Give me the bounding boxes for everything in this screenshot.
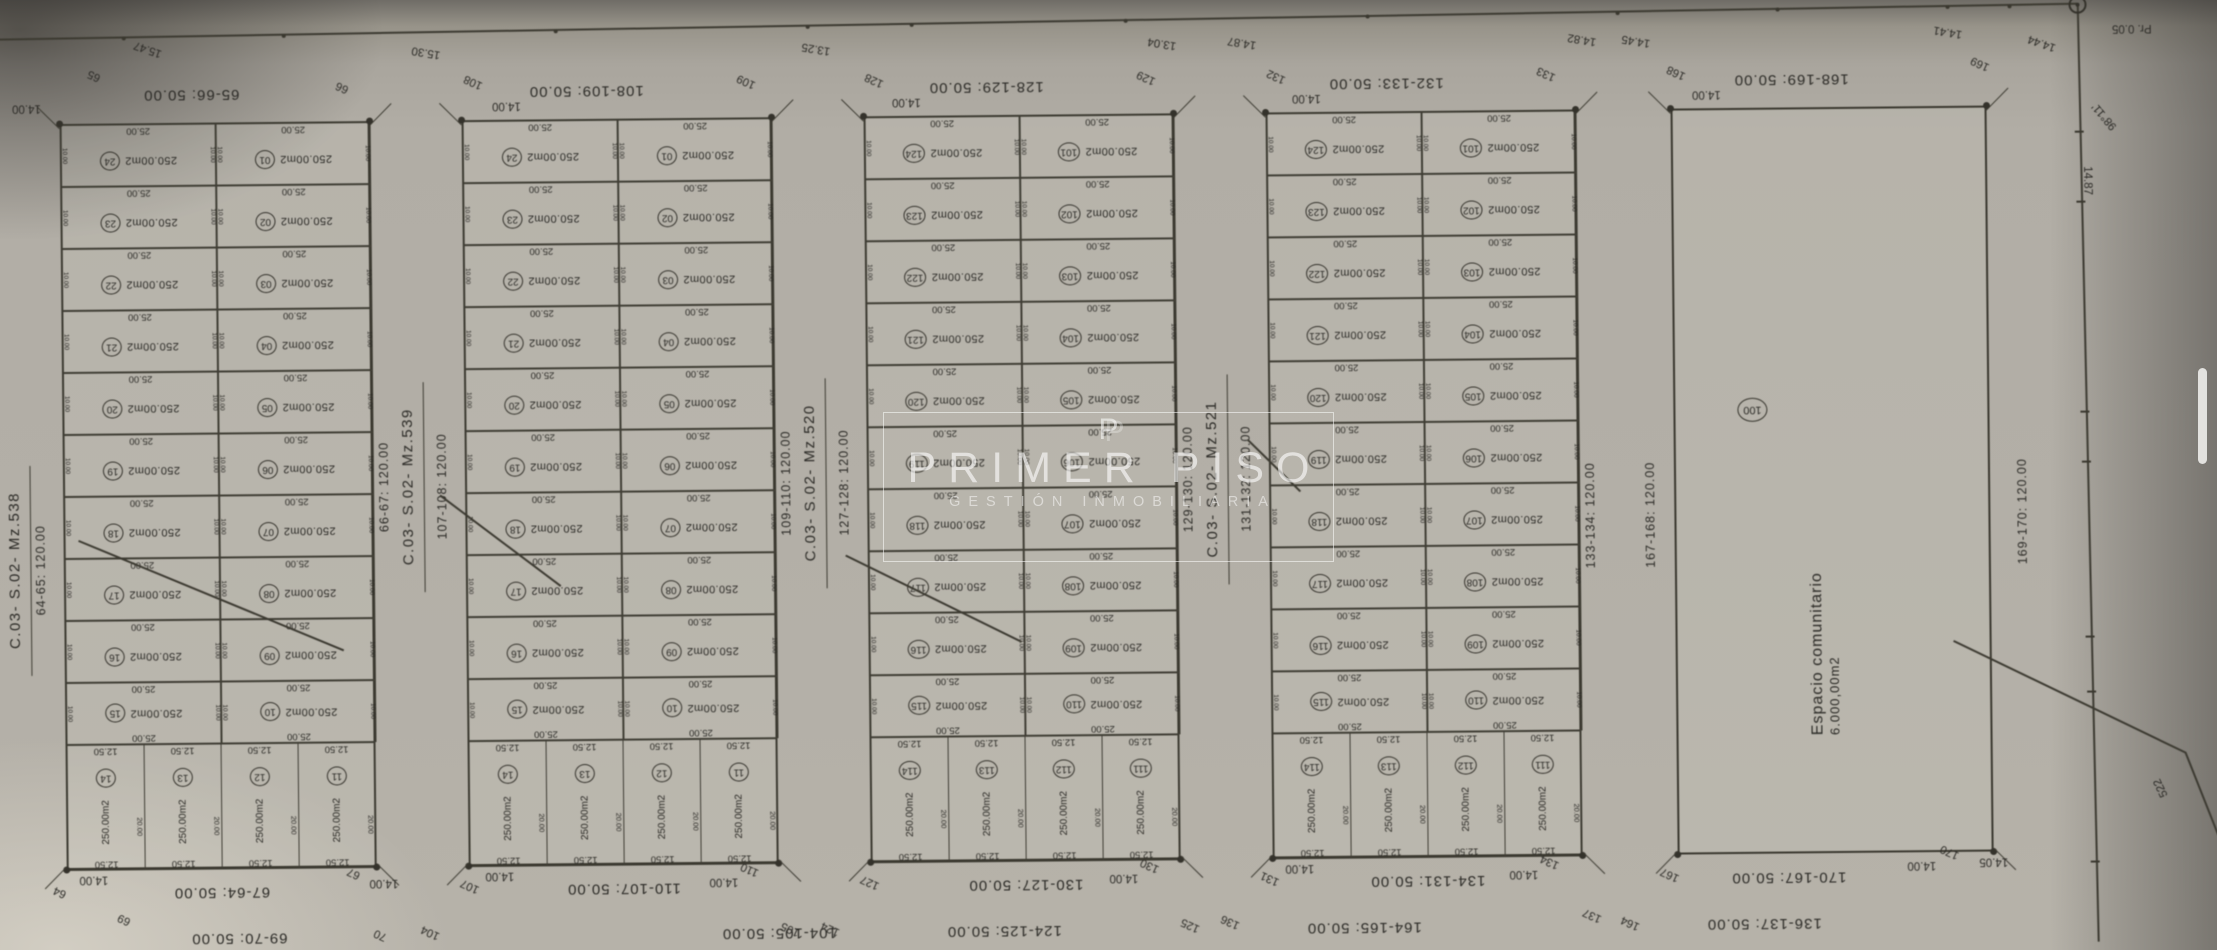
lot: 250.00m22225.0010.0010.00: [464, 244, 620, 307]
lot-area-label: 250.00m2: [127, 402, 179, 414]
lot-width-label: 25.00: [934, 489, 958, 500]
lot-depth-label: 10.00: [1573, 505, 1580, 521]
lot-mid-row: 250.00m205: [219, 382, 372, 432]
lot: 250.00m210925.0010.0010.00: [1024, 610, 1180, 673]
lot-content: 250.00m211725.00: [1272, 547, 1426, 608]
vertex-or-tick-label: 167: [1659, 865, 1681, 884]
lot-content: 12.50250.00m21212.50: [624, 740, 701, 865]
lot-number-circle: 118: [1308, 512, 1330, 531]
lot-width-label: 12.50: [898, 738, 922, 749]
lot-number-circle: 120: [905, 392, 928, 411]
lot-depth-label: 10.00: [1425, 507, 1432, 523]
edge-dimension-label: 169-170: 120.00: [2015, 458, 2030, 564]
viewer-scrollbar[interactable]: [2198, 368, 2207, 464]
lot-area-label: 250.00m2: [1491, 575, 1543, 587]
lot-number-circle: 124: [902, 144, 925, 163]
edge-dimension-label: 65-66: 50.00: [143, 86, 239, 104]
lot-width-label: 25.00: [1336, 548, 1360, 559]
lot-depth-label: 10.00: [1574, 567, 1581, 583]
lot-mid-row: 250.00m216: [66, 632, 219, 682]
lot: 250.00m20225.0010.0010.00: [618, 180, 774, 243]
lot-area-label: 250.00m2: [682, 149, 734, 161]
lot-depth-label: 10.00: [368, 579, 375, 595]
lot-depth-label: 20.00: [1016, 809, 1025, 828]
lot-area-label: 250.00m2: [283, 525, 335, 537]
lot-depth-label: 20.00: [1170, 807, 1179, 826]
vertex-or-tick-label: 15.47: [132, 39, 163, 60]
lot-content: 25.00250.00m211525.00: [871, 675, 1025, 736]
lot-width-label: 25.00: [934, 551, 958, 562]
corner-point: [1946, 5, 1950, 9]
lot-mid-row: 250.00m202: [217, 196, 370, 246]
lot-depth-label: 10.00: [1422, 135, 1429, 151]
lot-mid-row: 250.00m2108: [1025, 560, 1178, 610]
lot: 25.00250.00m21525.0010.0010.00: [468, 678, 624, 741]
lot-mid-row: 250.00m2120: [868, 376, 1021, 426]
lot-depth-label: 10.00: [468, 640, 475, 656]
vertex-or-tick-label: 164: [1619, 914, 1641, 933]
lot-width-label: 12.50: [1377, 733, 1401, 744]
lot: 250.00m210425.0010.0010.00: [1423, 296, 1579, 359]
vertex-or-tick-label: 14.00: [1907, 859, 1936, 871]
lot-mid-row: 250.00m201: [217, 134, 370, 184]
manzana-block: 250.00m212425.0010.0010.00250.00m210125.…: [864, 113, 1181, 862]
lot-depth-label: 10.00: [621, 514, 628, 530]
lot-width-label: 25.00: [534, 679, 558, 690]
lot-number-circle: 23: [100, 213, 120, 232]
lot-content: 250.00m20525.00: [621, 367, 775, 428]
edge-dimension-label: 108-109: 50.00: [529, 82, 644, 100]
lot-mid-row: 250.00m2120: [1270, 372, 1423, 422]
lot-depth-label: 10.00: [219, 518, 226, 534]
lot-width-label: 12.50: [651, 853, 675, 864]
lot-mid-row: 250.00m223: [62, 198, 215, 248]
lot-depth-label: 20.00: [691, 812, 700, 831]
lot-number-circle: 20: [102, 399, 122, 418]
lot-content: 250.00m22125.00: [63, 311, 217, 372]
lot-depth-label: 20.00: [289, 816, 298, 835]
lot-area-label: 250.00m2: [101, 801, 112, 846]
road-line: [439, 103, 462, 126]
lot-depth-label: 10.00: [866, 264, 873, 280]
lot-depth-label: 10.00: [1171, 509, 1178, 525]
lot-number-circle: 110: [1063, 695, 1085, 714]
lot-area-label: 250.00m2: [130, 650, 182, 662]
lot-content: 250.00m21825.00: [467, 493, 621, 554]
lot-depth-label: 10.00: [218, 332, 225, 348]
lot-content: 250.00m20725.00: [220, 495, 374, 556]
vertex-or-tick-label: 14.41: [1933, 24, 1963, 41]
lot-area-label: 250.00m2: [1307, 789, 1318, 834]
subdivision-plan: 250.00m22425.0010.0010.00250.00m20125.00…: [0, 0, 2217, 950]
lot-number-circle: 103: [1461, 262, 1484, 281]
lot-mid-row: 250.00m215: [67, 694, 220, 733]
lot-depth-label: 20.00: [1093, 808, 1102, 827]
lot-depth-label: 10.00: [219, 456, 226, 472]
lot-depth-label: 20.00: [366, 815, 375, 834]
lot-content: 250.00m210325.00: [1022, 239, 1176, 300]
lot: 250.00m212225.0010.0010.00: [1268, 236, 1424, 299]
frame-tick: [2076, 201, 2085, 203]
vertex-or-tick-label: 14.00: [1292, 92, 1321, 104]
lot-depth-label: 20.00: [768, 811, 777, 830]
lot: 250.00m211725.0010.0010.00: [1271, 546, 1427, 609]
lot-area-label: 250.00m2: [531, 585, 583, 597]
lot-depth-label: 10.00: [1424, 383, 1431, 399]
lot: 12.50250.00m211312.5020.00: [1349, 732, 1428, 859]
lot-width-label: 25.00: [1089, 550, 1113, 561]
lot: 250.00m212025.0010.0010.00: [1269, 360, 1425, 423]
lot-content: 25.00250.00m211025.00: [1428, 669, 1582, 730]
lot-width-label: 25.00: [1091, 674, 1115, 685]
open-space-label: Espacio comunitario6.000,00m2: [1788, 465, 1861, 736]
vertex-or-tick-label: 14.00: [1109, 872, 1138, 884]
lot-mid-row: 250.00m2116: [1272, 620, 1425, 670]
lot-number-circle: 101: [1057, 142, 1080, 161]
lot: 250.00m211625.0010.0010.00: [869, 612, 1025, 675]
lot-depth-label: 10.00: [63, 334, 70, 350]
lot-width-label: 25.00: [1091, 723, 1115, 734]
lot-width-label: 12.50: [727, 739, 751, 750]
lot-mid-row: 250.00m204: [620, 316, 773, 366]
lot-mid-row: 250.00m221: [63, 322, 216, 372]
lot-width-label: 12.50: [496, 742, 520, 753]
lot-area-label: 250.00m2: [126, 278, 178, 290]
lot-mid-row: 250.00m209: [221, 630, 374, 680]
lot-width-label: 12.50: [171, 745, 195, 756]
lot-depth-label: 10.00: [619, 266, 626, 282]
lot-width-label: 25.00: [1491, 546, 1515, 557]
lot-mid-row: 250.00m2104: [1424, 308, 1577, 358]
lot-width-label: 25.00: [532, 493, 556, 504]
lot-number-circle: 109: [1062, 638, 1085, 657]
lot-width-label: 25.00: [1338, 721, 1362, 732]
lot-mid-row: 250.00m203: [620, 254, 773, 304]
lot: 250.00m20725.0010.0010.00: [219, 494, 375, 557]
lot-width-label: 25.00: [284, 372, 308, 383]
lot-content: 250.00m21825.00: [65, 497, 219, 558]
lot: 12.50250.00m21212.5020.00: [221, 743, 300, 870]
lot: 250.00m22425.0010.0010.00: [61, 124, 217, 187]
lot: 25.00250.00m211025.0010.0010.00: [1427, 668, 1583, 731]
lot-content: 250.00m20925.00: [221, 619, 375, 680]
lot-width-label: 25.00: [931, 179, 955, 190]
lot-width-label: 25.00: [1088, 364, 1112, 375]
lot-width-label: 25.00: [129, 373, 153, 384]
lot-depth-label: 20.00: [135, 817, 144, 836]
lot-number-circle: 12: [652, 763, 672, 782]
lot-content: 12.50250.00m211212.50: [1427, 732, 1504, 857]
lot-content: 12.50250.00m21112.50: [701, 739, 778, 864]
lot-depth-label: 10.00: [468, 702, 475, 718]
lot-mid-row: 250.00m2122: [1269, 248, 1422, 298]
lot-content: 250.00m22125.00: [465, 307, 619, 368]
lot-width-label: 12.50: [975, 737, 999, 748]
lot-content: 250.00m211925.00: [1271, 423, 1425, 484]
lot-area-label: 250.00m2: [905, 793, 916, 838]
lot-depth-label: 10.00: [865, 202, 872, 218]
lot-area-label: 250.00m2: [128, 464, 180, 476]
vertex-or-tick-label: 104: [419, 923, 441, 942]
lot-depth-label: 10.00: [766, 203, 773, 219]
lot-area-label: 250.00m2: [129, 588, 181, 600]
lot-number-circle: 118: [906, 516, 928, 535]
lot-area-label: 250.00m2: [127, 340, 179, 352]
lot-width-label: 25.00: [283, 310, 307, 321]
lot-content: 25.00250.00m211025.00: [1026, 673, 1180, 734]
lot-mid-row: 250.00m2103: [1022, 250, 1175, 300]
lot-area-label: 250.00m2: [1489, 389, 1541, 401]
lot-width-label: 12.50: [1053, 849, 1077, 860]
lot-width-label: 25.00: [531, 369, 555, 380]
lot-area-label: 250.00m2: [280, 153, 332, 165]
lot-width-label: 25.00: [689, 727, 713, 738]
lot: 250.00m21925.0010.0010.00: [466, 430, 622, 493]
lot-content: 250.00m210425.00: [1424, 297, 1578, 358]
lot: 12.50250.00m21112.5020.00: [298, 742, 377, 869]
lot-depth-label: 10.00: [770, 575, 777, 591]
lot-width-label: 12.50: [497, 855, 521, 866]
lot-depth-label: 10.00: [1020, 139, 1027, 155]
lot: 250.00m210325.0010.0010.00: [1021, 238, 1177, 301]
corner-point: [554, 29, 558, 33]
lot-number-circle: 16: [507, 644, 527, 663]
lot-depth-label: 10.00: [221, 704, 228, 720]
lot-mid-row: 250.00m208: [623, 564, 776, 614]
lot-number-circle: 02: [255, 212, 275, 231]
lot: 12.50250.00m211212.5020.00: [1426, 731, 1505, 858]
lot-depth-label: 10.00: [1573, 443, 1580, 459]
lot-area-label: 250.00m2: [1336, 577, 1388, 590]
vertex-or-tick-label: 14.00: [1285, 862, 1314, 874]
lot: 250.00m20625.0010.0010.00: [621, 428, 777, 491]
lot: 12.50250.00m21312.5020.00: [144, 744, 223, 871]
vertex-or-tick-label: 522: [2152, 777, 2171, 799]
lot: 250.00m210625.0010.0010.00: [1425, 420, 1581, 483]
lot-number-circle: 01: [657, 146, 677, 165]
lot-number-circle: 107: [1061, 514, 1084, 533]
lot: 250.00m22225.0010.0010.00: [62, 248, 218, 311]
lot: 250.00m212125.0010.0010.00: [866, 302, 1022, 365]
lot-depth-label: 10.00: [1570, 195, 1577, 211]
lot-content: 250.00m212225.00: [867, 241, 1021, 302]
lot-number-circle: 121: [1306, 326, 1329, 345]
lot-content: 250.00m21625.00: [66, 621, 220, 682]
lot-width-label: 12.50: [326, 856, 350, 867]
road-line: [1226, 374, 1229, 584]
manzana-block: 250.00m22425.0010.0010.00250.00m20125.00…: [462, 117, 779, 866]
lot-content: 250.00m21725.00: [468, 555, 622, 616]
lot-depth-label: 10.00: [217, 270, 224, 286]
lot-content: 250.00m20325.00: [620, 243, 774, 304]
lot-width-label: 12.50: [1301, 847, 1325, 858]
lot-area-label: 250.00m2: [530, 523, 582, 535]
lot: 250.00m20425.0010.0010.00: [217, 308, 373, 371]
lot: 250.00m22025.0010.0010.00: [63, 372, 219, 435]
lot-width-label: 12.50: [1531, 732, 1555, 743]
lot-area-label: 250.00m2: [282, 401, 334, 413]
lot-mid-row: 250.00m2122: [867, 252, 1020, 302]
lot-content: 250.00m210525.00: [1023, 363, 1177, 424]
lot-area-label: 250.00m2: [982, 792, 993, 837]
lot-content: 250.00m20525.00: [219, 371, 373, 432]
vertex-or-tick-label: 13.04: [1147, 35, 1177, 52]
lot-mid-row: 250.00m2109: [1025, 622, 1178, 672]
lot-width-label: 25.00: [284, 434, 308, 445]
lot-depth-label: 10.00: [1427, 693, 1434, 709]
lot-depth-label: 10.00: [364, 145, 371, 161]
lot-depth-label: 10.00: [221, 642, 228, 658]
lot-mid-row: 250.00m2124: [866, 128, 1019, 178]
lot-number-circle: 09: [260, 646, 280, 665]
lot-area-label: 250.00m2: [1488, 265, 1540, 277]
vertex-or-tick-label: 13.25: [801, 41, 831, 58]
lot-depth-label: 10.00: [1173, 633, 1180, 649]
lot-width-label: 25.00: [282, 186, 306, 197]
lot-number-circle: 106: [1462, 448, 1485, 467]
lot-width-label: 25.00: [1338, 672, 1362, 683]
edge-dimension-label: 132-133: 50.00: [1329, 74, 1444, 92]
lot: 250.00m211825.0010.0010.00: [868, 488, 1024, 551]
lot-number-circle: 01: [255, 150, 275, 169]
lot-number-circle: 22: [503, 272, 523, 291]
lot-depth-label: 10.00: [465, 330, 472, 346]
lot-depth-label: 10.00: [365, 269, 372, 285]
lot-depth-label: 10.00: [623, 700, 630, 716]
vertex-or-tick-label: 14.05: [1979, 855, 2008, 867]
lot: 25.00250.00m211525.0010.0010.00: [870, 674, 1026, 737]
lot-mid-row: 250.00m202: [619, 192, 772, 242]
lot-number-circle: 07: [258, 522, 278, 541]
lot-width-label: 12.50: [976, 850, 1000, 861]
lot-width-label: 12.50: [650, 740, 674, 751]
lot: 250.00m210225.0010.0010.00: [1020, 176, 1176, 239]
lot: 250.00m20525.0010.0010.00: [218, 370, 374, 433]
lot-mid-row: 250.00m207: [220, 506, 373, 556]
lot-mid-row: 250.00m219: [65, 446, 218, 496]
lot-number-circle: 04: [659, 332, 679, 351]
lot: 250.00m20825.0010.0010.00: [622, 552, 778, 615]
lot-number-circle: 18: [103, 523, 123, 542]
lot-width-label: 25.00: [1493, 719, 1517, 730]
lot: 250.00m211925.0010.0010.00: [1270, 422, 1426, 485]
lot: 12.50250.00m211212.5020.00: [1024, 735, 1103, 862]
lot-width-label: 25.00: [131, 621, 155, 632]
lot-content: 250.00m20225.00: [217, 185, 371, 246]
lot-content: 250.00m212325.00: [1268, 175, 1422, 236]
lot-mid-row: 250.00m218: [467, 504, 620, 554]
lot-width-label: 25.00: [936, 724, 960, 735]
vertex-or-tick-label: 136: [1219, 912, 1241, 931]
edge-dimension-label: 67-64: 50.00: [174, 884, 270, 902]
lot-width-label: 25.00: [531, 431, 555, 442]
lot-width-label: 25.00: [689, 678, 713, 689]
lot-mid-row: 250.00m2105: [1425, 370, 1578, 420]
lot: 250.00m20525.0010.0010.00: [620, 366, 776, 429]
lot-depth-label: 10.00: [66, 644, 73, 660]
lot-mid-row: 250.00m2106: [1426, 432, 1579, 482]
lot-area-label: 250.00m2: [1136, 791, 1147, 836]
lot-mid-row: 250.00m219: [467, 442, 620, 492]
lot-number-circle: 101: [1459, 138, 1482, 157]
lot-width-label: 25.00: [685, 306, 709, 317]
lot-depth-label: 10.00: [1271, 570, 1278, 586]
lot-area-label: 250.00m2: [1490, 451, 1542, 463]
lot-area-label: 250.00m2: [1384, 788, 1395, 833]
lot-width-label: 25.00: [931, 241, 955, 252]
lot-depth-label: 10.00: [868, 450, 875, 466]
lot-area-label: 250.00m2: [1332, 143, 1384, 155]
lot: 250.00m21925.0010.0010.00: [64, 434, 220, 497]
lot-number-circle: 107: [1463, 510, 1486, 529]
lot-width-label: 25.00: [285, 496, 309, 507]
lot-depth-label: 10.00: [767, 265, 774, 281]
lot-content: 250.00m20125.00: [217, 123, 371, 184]
lot-depth-label: 10.00: [1267, 136, 1274, 152]
edge-dimension-label: 127-128: 120.00: [837, 429, 852, 535]
lot-content: 250.00m22325.00: [62, 187, 216, 248]
lot-content: 250.00m211625.00: [1272, 609, 1426, 670]
edge-dimension-label: 124-125: 50.00: [947, 922, 1062, 940]
lot-mid-row: 250.00m224: [62, 136, 215, 186]
vertex-or-tick-label: 14.00: [485, 870, 514, 882]
lot-depth-label: 10.00: [64, 458, 71, 474]
lot-mid-row: 250.00m2118: [1271, 496, 1424, 546]
lot-area-label: 250.00m2: [1334, 391, 1386, 403]
edge-dimension-label: 167-168: 120.00: [1643, 462, 1658, 568]
lot-area-label: 250.00m2: [280, 215, 332, 227]
lot-depth-label: 10.00: [463, 206, 470, 222]
lot-depth-label: 10.00: [465, 392, 472, 408]
lot-number-circle: 114: [899, 760, 921, 779]
lot-depth-label: 10.00: [622, 576, 629, 592]
lot-width-label: 25.00: [1491, 484, 1515, 495]
lot-number-circle: 03: [256, 274, 276, 293]
lot-number-circle: 109: [1464, 634, 1487, 653]
lot-area-label: 250.00m2: [580, 796, 591, 841]
edge-dimension-label: 110-107: 50.00: [567, 880, 681, 898]
edge-dimension-label: 168-169: 50.00: [1734, 70, 1849, 88]
edge-dimension-label: 136-137: 50.00: [1707, 915, 1822, 933]
lot-mid-row: 250.00m209: [623, 626, 776, 676]
lot-width-label: 25.00: [1333, 238, 1357, 249]
lot-number-circle: 106: [1060, 452, 1083, 471]
lot-number-circle: 116: [1310, 636, 1332, 655]
lot: 250.00m210225.0010.0010.00: [1422, 172, 1578, 235]
lot-number-circle: 19: [103, 461, 123, 480]
lot-content: 250.00m212025.00: [868, 365, 1022, 426]
lot-content: 12.50250.00m21312.50: [547, 741, 624, 866]
lot-width-label: 12.50: [94, 746, 118, 757]
lot-content: 250.00m210725.00: [1024, 487, 1178, 548]
lot-area-label: 250.00m2: [686, 583, 738, 595]
lot: 250.00m22325.0010.0010.00: [463, 182, 619, 245]
lot-width-label: 12.50: [1454, 732, 1478, 743]
lot-content: 250.00m210125.00: [1021, 115, 1175, 176]
lot: 250.00m212425.0010.0010.00: [1267, 112, 1423, 175]
lot-width-label: 12.50: [573, 741, 597, 752]
lot-mid-row: 250.00m205: [621, 378, 774, 428]
lot-width-label: 25.00: [281, 124, 305, 135]
lot-depth-label: 10.00: [618, 204, 625, 220]
lot: 250.00m212325.0010.0010.00: [1267, 174, 1423, 237]
lot-mid-row: 250.00m2105: [1023, 374, 1176, 424]
lot-area-label: 250.00m2: [933, 457, 985, 469]
lot-area-label: 250.00m2: [283, 463, 335, 475]
edge-dimension-label: 130-127: 50.00: [968, 876, 1083, 894]
lot-mid-row: 250.00m2110: [1428, 680, 1581, 719]
lot-width-label: 25.00: [529, 245, 553, 256]
